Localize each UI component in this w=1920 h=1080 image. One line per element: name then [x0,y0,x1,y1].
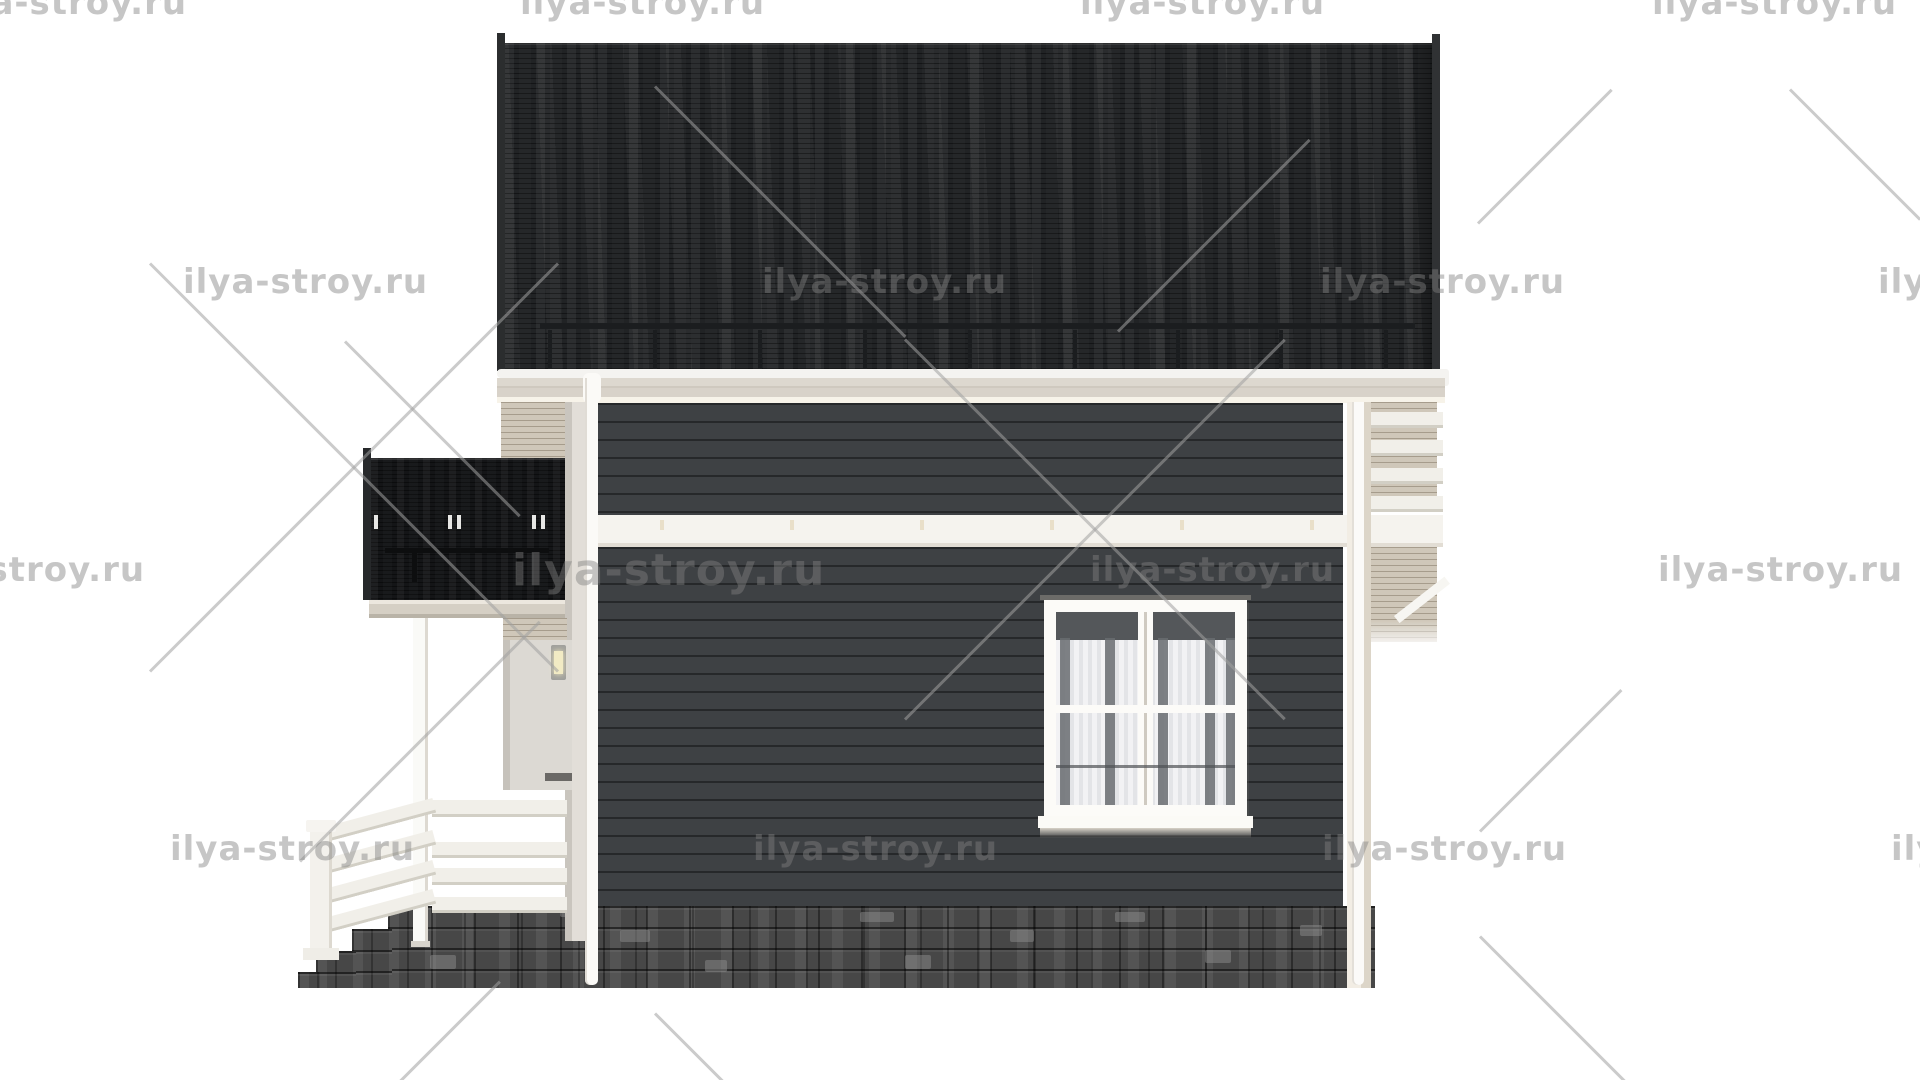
watermark-text: ilya-stroy.ru [1658,553,1903,587]
watermark-diagonal-line [1477,89,1613,225]
watermark-text: ilya-stroy.ru [0,0,187,20]
watermark-text: ilya-stroy.ru [0,553,145,587]
watermark-text: ilya-stroy.ru [1320,265,1565,299]
watermark-diagonal-line [344,340,521,517]
watermark-text: ilya-stroy.ru [170,832,415,866]
watermark-text: ilya-stroy.ru [512,549,825,593]
watermark-diagonal-line [654,1012,731,1080]
watermark-diagonal-line [397,981,501,1080]
watermark-text: ilya-stroy.ru [762,265,1007,299]
rendering-canvas: ilya-stroy.ru ilya-stroy.ru ilya-stroy.r… [0,0,1920,1080]
watermark-layer: ilya-stroy.ru ilya-stroy.ru ilya-stroy.r… [0,0,1920,1080]
watermark-text: ilya-stroy.ru [1891,832,1920,866]
watermark-text: ilya-stroy.ru [1090,553,1335,587]
watermark-text: ilya-stroy.ru [183,265,428,299]
watermark-diagonal-line [1117,139,1311,333]
watermark-diagonal-line [1479,935,1629,1080]
watermark-text: ilya-stroy.ru [753,832,998,866]
watermark-text: ilya-stroy.ru [1080,0,1325,20]
watermark-diagonal-line [1479,689,1623,833]
watermark-diagonal-line [1789,88,1920,220]
watermark-text: ilya-stroy.ru [1878,265,1920,299]
watermark-diagonal-line [299,621,541,863]
watermark-text: ilya-stroy.ru [520,0,765,20]
watermark-text: ilya-stroy.ru [1322,832,1567,866]
watermark-text: ilya-stroy.ru [1652,0,1897,20]
